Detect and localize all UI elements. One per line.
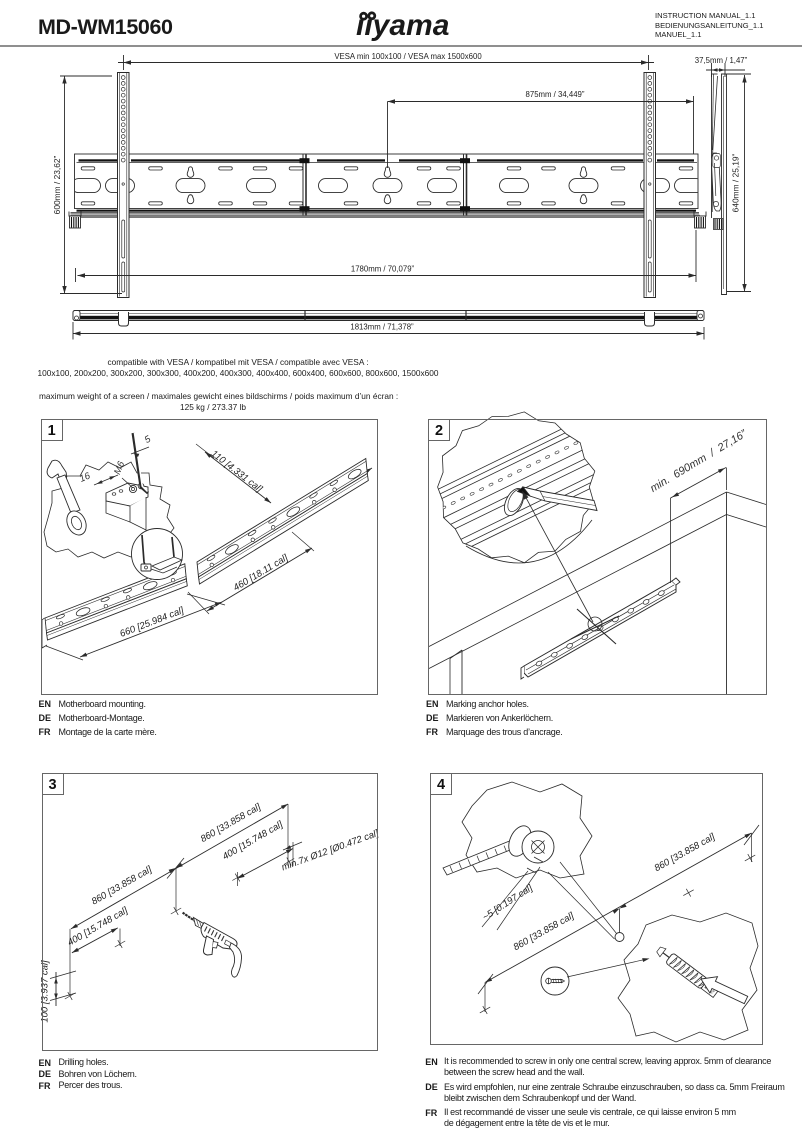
svg-text:37,5mm / 1,47”: 37,5mm / 1,47” xyxy=(695,56,748,65)
svg-text:1780mm / 70,079”: 1780mm / 70,079” xyxy=(351,265,415,274)
svg-text:600mm / 23,62”: 600mm / 23,62” xyxy=(52,155,62,214)
svg-text:1813mm / 71,378”: 1813mm / 71,378” xyxy=(350,323,414,332)
svg-text:640mm / 25,19”: 640mm / 25,19” xyxy=(731,153,741,212)
svg-text:875mm / 34,449”: 875mm / 34,449” xyxy=(526,90,585,99)
svg-text:VESA min 100x100 / VESA max 15: VESA min 100x100 / VESA max 1500x600 xyxy=(334,52,482,61)
